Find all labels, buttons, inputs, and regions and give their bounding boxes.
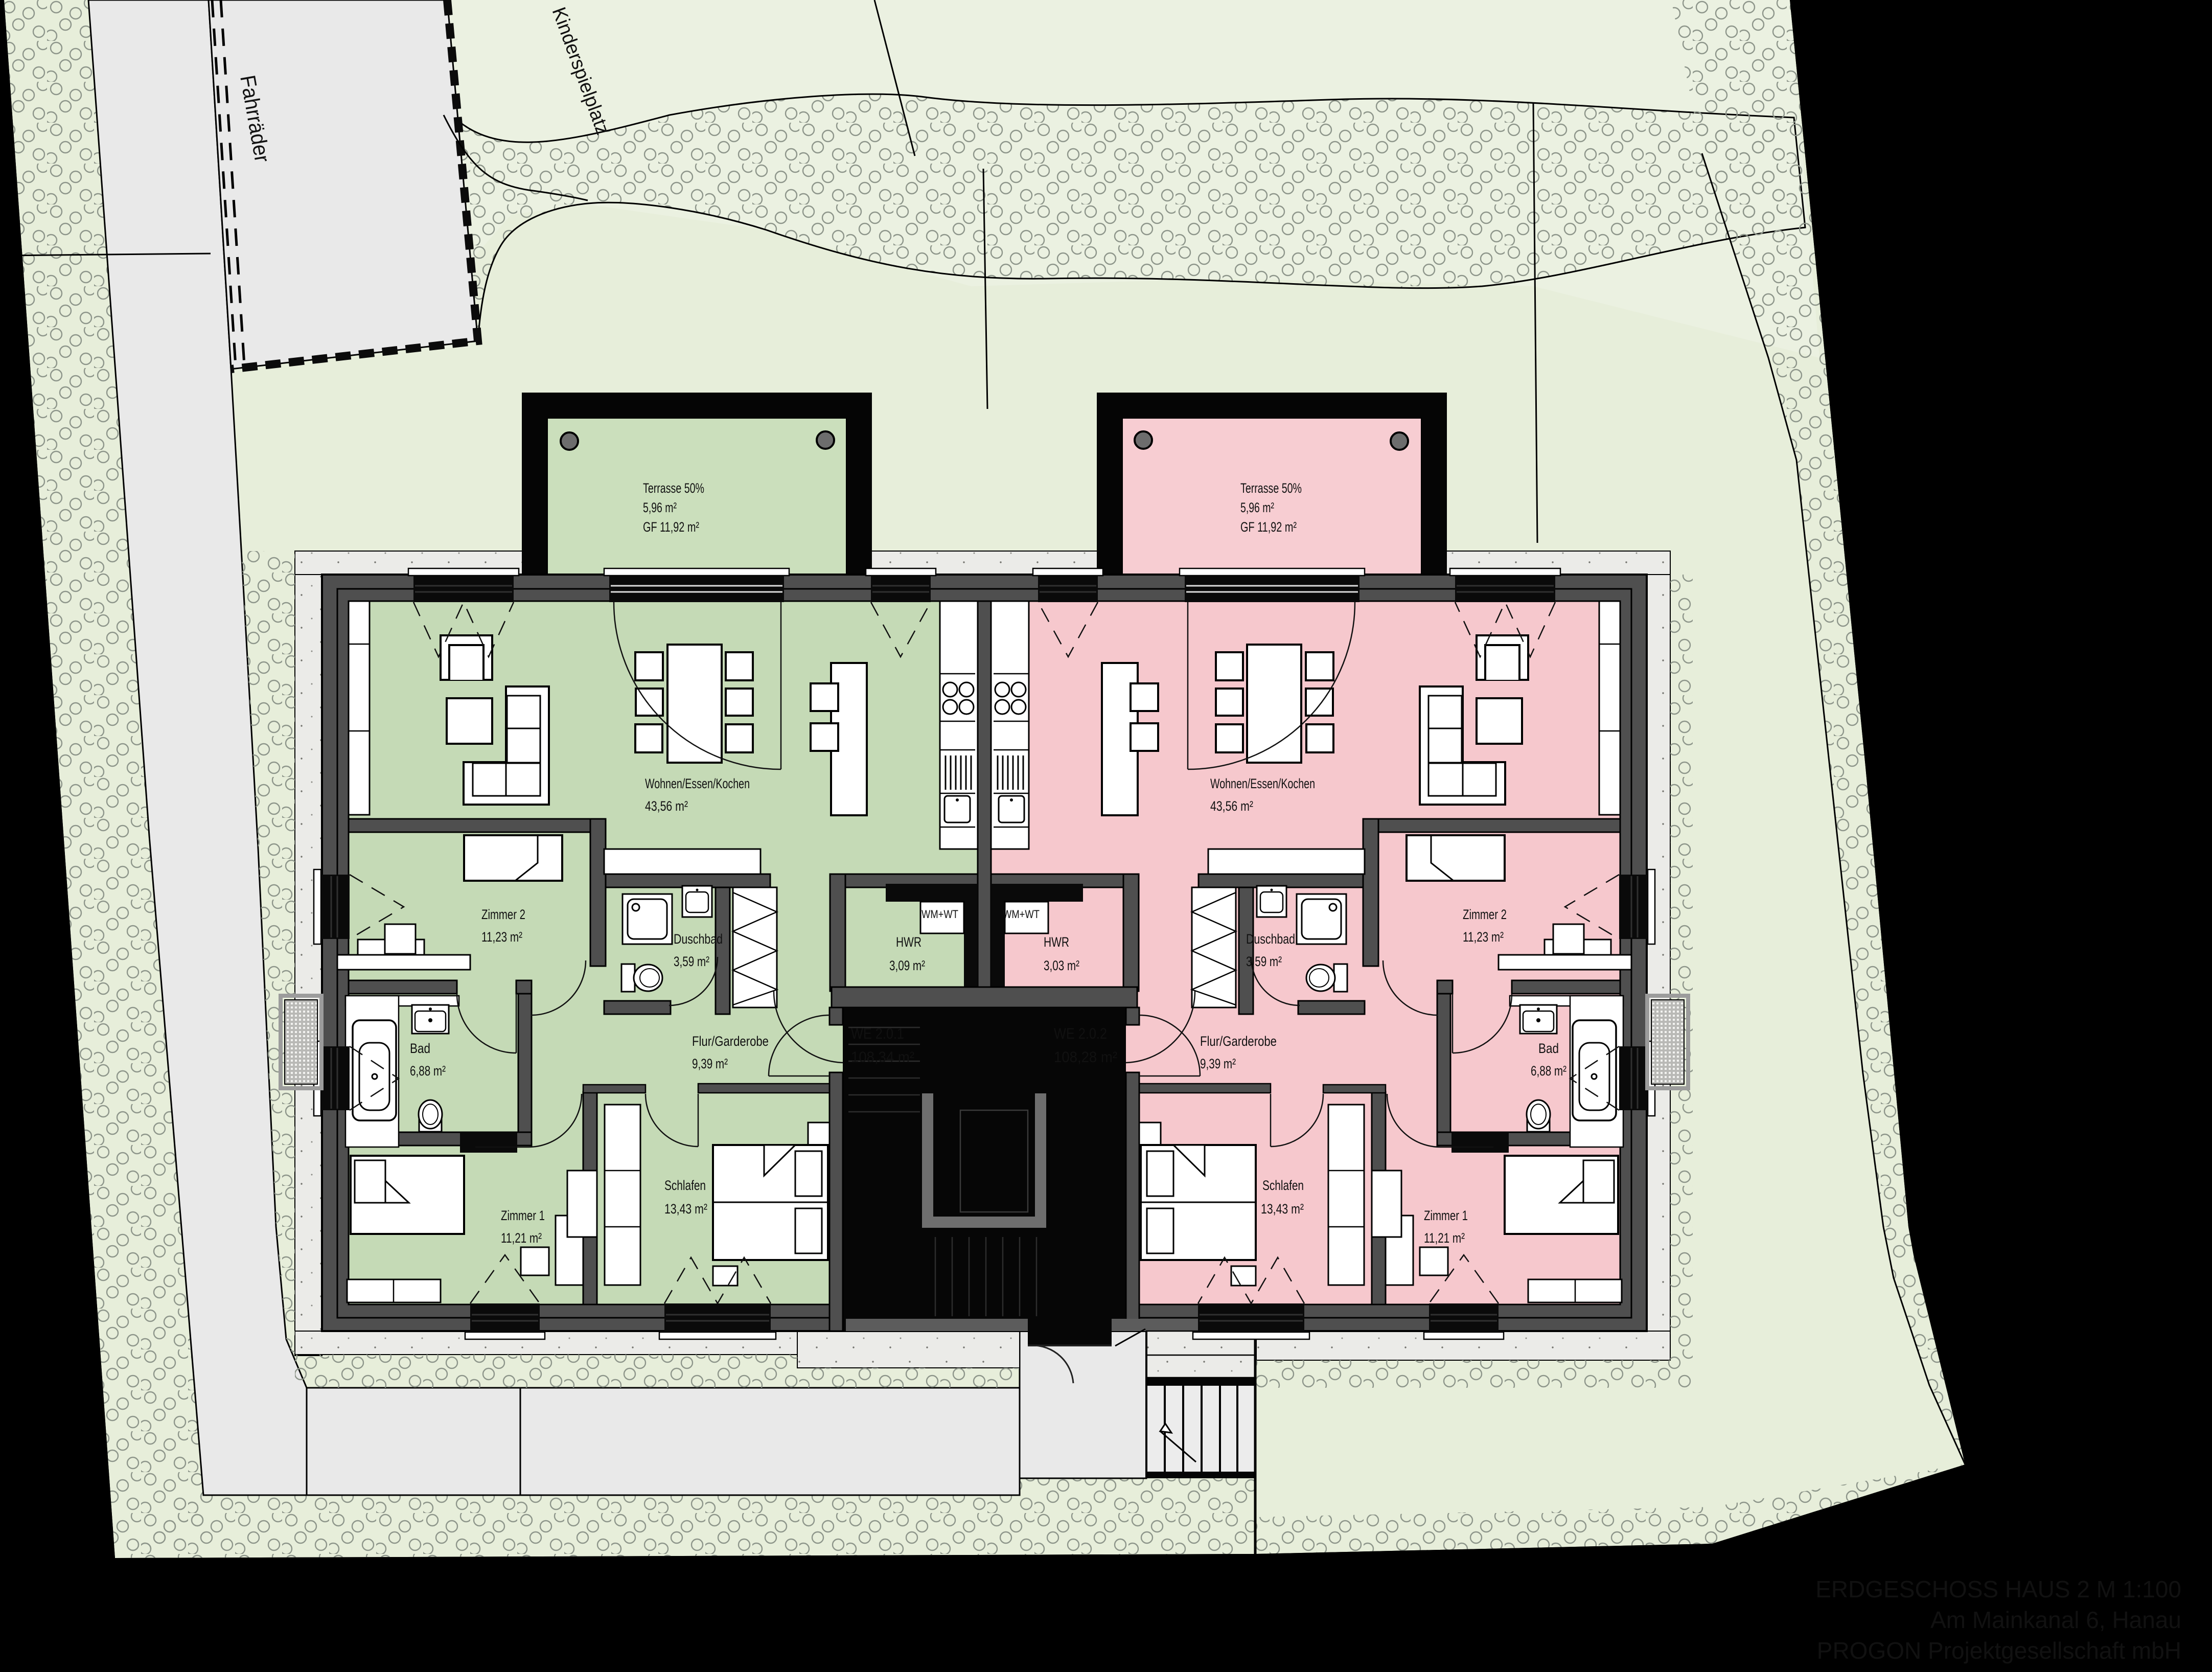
svg-text:13,43 m²: 13,43 m² [664,1201,707,1217]
svg-text:GF 11,92 m²: GF 11,92 m² [1240,519,1297,535]
svg-text:Zimmer 2: Zimmer 2 [481,907,525,922]
svg-text:9,39 m²: 9,39 m² [692,1056,728,1071]
svg-text:WM+WT: WM+WT [1003,908,1040,921]
svg-text:3,03 m²: 3,03 m² [1044,958,1079,973]
svg-text:43,56 m²: 43,56 m² [1210,798,1253,814]
svg-text:11,21 m²: 11,21 m² [501,1230,542,1246]
svg-text:Duschbad: Duschbad [1246,931,1295,947]
svg-text:11,23 m²: 11,23 m² [1463,929,1504,945]
svg-text:Am Mainkanal 6, Hanau: Am Mainkanal 6, Hanau [1930,1607,2181,1633]
svg-text:6,88 m²: 6,88 m² [1531,1063,1566,1079]
svg-text:5,96 m²: 5,96 m² [1240,500,1274,515]
svg-text:Bad: Bad [410,1041,430,1056]
svg-text:GF 11,92 m²: GF 11,92 m² [643,519,699,535]
svg-text:108,28 m²: 108,28 m² [1054,1049,1117,1066]
svg-text:HWR: HWR [896,934,921,950]
svg-text:Terrasse 50%: Terrasse 50% [643,480,704,496]
svg-text:3,59 m²: 3,59 m² [1246,954,1282,969]
svg-text:Schlafen: Schlafen [664,1178,706,1193]
svg-text:Zimmer 2: Zimmer 2 [1463,907,1507,922]
svg-text:Zimmer 1: Zimmer 1 [1424,1208,1468,1223]
svg-text:Duschbad: Duschbad [674,931,723,947]
svg-text:Wohnen/Essen/Kochen: Wohnen/Essen/Kochen [1210,776,1315,791]
svg-text:9,39 m²: 9,39 m² [1200,1056,1236,1071]
svg-text:6,88 m²: 6,88 m² [410,1063,446,1079]
svg-text:Flur/Garderobe: Flur/Garderobe [1200,1034,1277,1049]
svg-text:11,21 m²: 11,21 m² [1424,1230,1465,1246]
svg-text:13,43 m²: 13,43 m² [1261,1201,1304,1217]
svg-text:WE 2.0.2: WE 2.0.2 [1054,1025,1107,1042]
svg-text:3,09 m²: 3,09 m² [889,958,925,973]
svg-text:Bad: Bad [1538,1041,1559,1056]
svg-text:108,34 m²: 108,34 m² [851,1049,914,1066]
svg-text:PROGON Projektgesellschaft mbH: PROGON Projektgesellschaft mbH [1817,1637,2181,1664]
svg-text:43,56 m²: 43,56 m² [645,798,688,814]
svg-text:Wohnen/Essen/Kochen: Wohnen/Essen/Kochen [645,776,750,791]
svg-text:Schlafen: Schlafen [1262,1178,1304,1193]
svg-text:3,59 m²: 3,59 m² [674,954,709,969]
svg-text:Flur/Garderobe: Flur/Garderobe [692,1034,769,1049]
svg-text:Zimmer 1: Zimmer 1 [501,1208,545,1223]
svg-text:Terrasse 50%: Terrasse 50% [1240,480,1302,496]
svg-text:WE 2.0.1: WE 2.0.1 [851,1025,904,1042]
svg-text:11,23 m²: 11,23 m² [481,929,522,945]
svg-text:ERDGESCHOSS HAUS 2 M 1:100: ERDGESCHOSS HAUS 2 M 1:100 [1815,1576,2181,1602]
svg-text:HWR: HWR [1044,934,1069,950]
svg-text:5,96 m²: 5,96 m² [643,500,677,515]
svg-text:WM+WT: WM+WT [921,908,958,921]
